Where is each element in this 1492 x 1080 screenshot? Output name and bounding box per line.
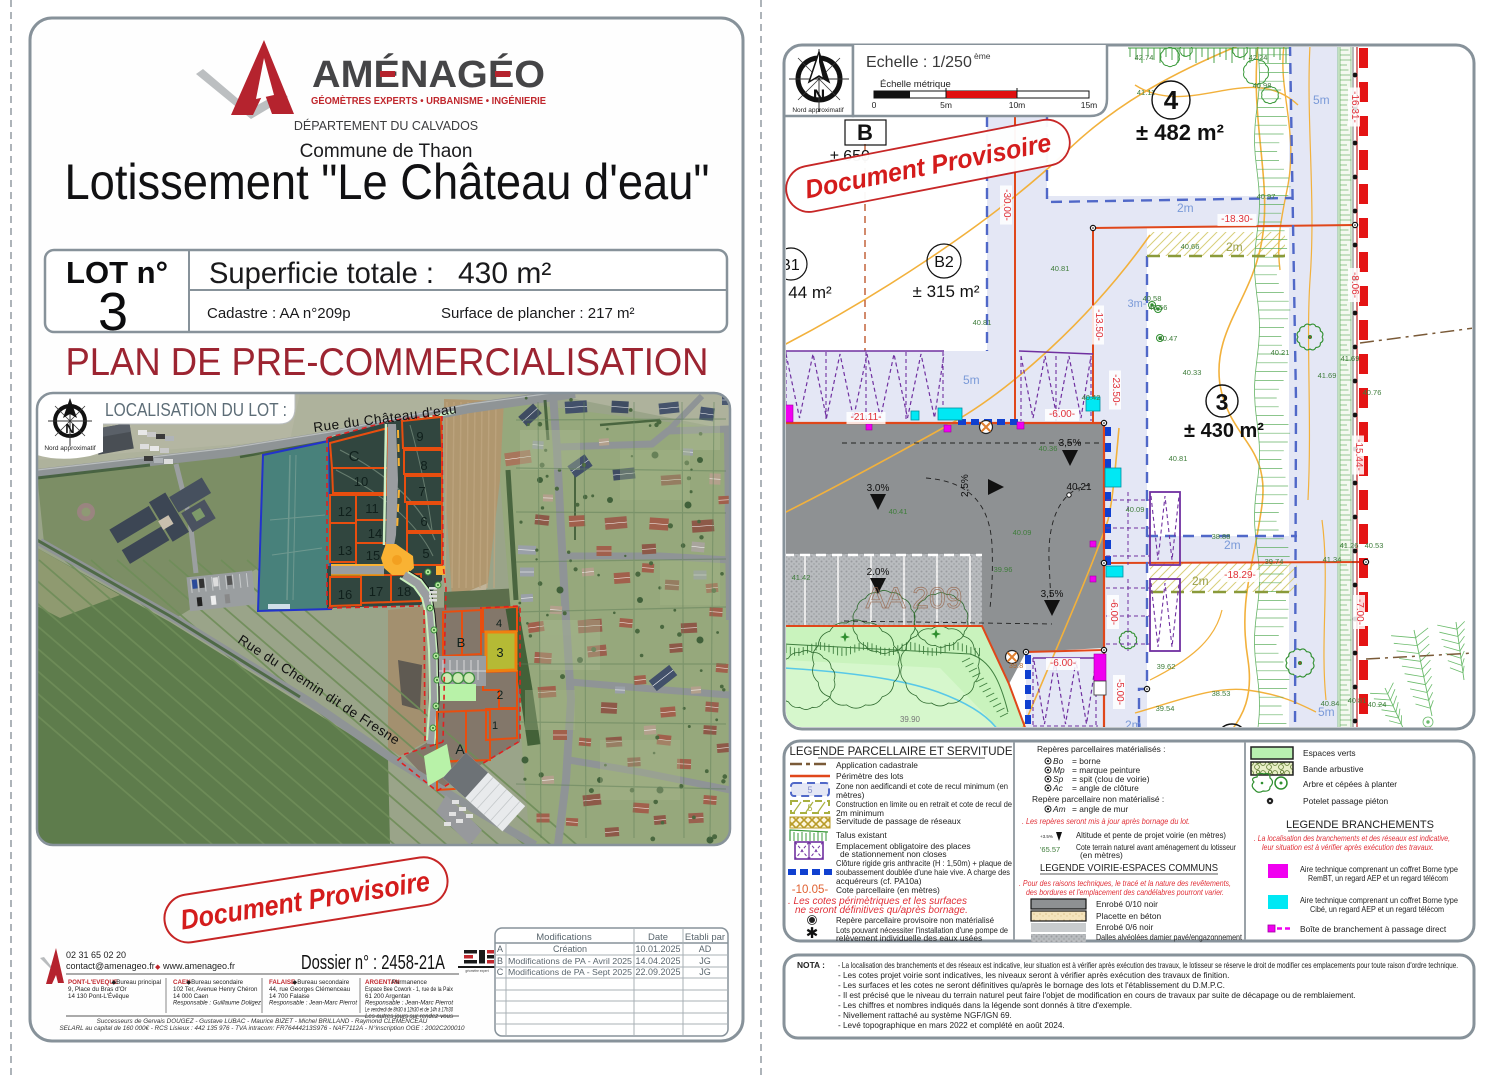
svg-text:02 31 65 02 20: 02 31 65 02 20 — [66, 950, 126, 960]
svg-text:3m-: 3m- — [1128, 298, 1147, 310]
svg-text:1: 1 — [492, 720, 498, 732]
svg-text:(en mètres): (en mètres) — [1080, 850, 1123, 860]
svg-text:JG: JG — [699, 956, 711, 966]
svg-text:. La localisation des branchem: . La localisation des branchements et de… — [1254, 834, 1450, 843]
svg-text:Modifications de PA - Avril 20: Modifications de PA - Avril 2025 — [508, 956, 632, 966]
svg-text:Enrobé 0/10 noir: Enrobé 0/10 noir — [1096, 899, 1158, 909]
svg-text:Cadastre : AA n°209p: Cadastre : AA n°209p — [207, 305, 351, 322]
svg-text:41.69: 41.69 — [1318, 371, 1337, 380]
svg-text:◆Bureau principal: ◆Bureau principal — [112, 979, 161, 986]
svg-text:C: C — [349, 448, 360, 465]
svg-text:Arbre et cépées à planter: Arbre et cépées à planter — [1303, 779, 1397, 789]
svg-text:NOTA :: NOTA : — [797, 960, 825, 970]
svg-text:44 m²: 44 m² — [788, 283, 832, 302]
svg-text:2m: 2m — [1224, 538, 1241, 552]
svg-text:'65.57: '65.57 — [1040, 845, 1060, 854]
svg-text:39.54: 39.54 — [1156, 704, 1175, 713]
svg-text:5: 5 — [807, 785, 812, 795]
svg-text:3,5%: 3,5% — [1059, 438, 1082, 449]
svg-text:40.81: 40.81 — [973, 318, 992, 327]
svg-text:40.42: 40.42 — [1082, 393, 1101, 402]
svg-text:3: 3 — [1216, 389, 1229, 415]
svg-text:10.01.2025: 10.01.2025 — [635, 944, 680, 954]
svg-text:AD: AD — [699, 944, 712, 954]
svg-text:- Levé topographique en mars 2: - Levé topographique en mars 2022 et com… — [838, 1021, 1065, 1030]
svg-text:38.53: 38.53 — [1212, 689, 1231, 698]
svg-text:- Nivellement rattaché au syst: - Nivellement rattaché au système NGF/IG… — [838, 1011, 1012, 1020]
svg-text:Surface de plancher : 217 m²: Surface de plancher : 217 m² — [441, 305, 634, 322]
svg-text:= angle de mur: = angle de mur — [1072, 804, 1128, 814]
svg-text:-6.00-: -6.00- — [1049, 409, 1075, 420]
svg-text:Responsable : Jean-Marc Pierro: Responsable : Jean-Marc Pierrot — [269, 1000, 357, 1007]
svg-text:-5.00-: -5.00- — [1114, 679, 1125, 705]
svg-text:41.42: 41.42 — [792, 573, 811, 582]
svg-text:Ac: Ac — [1052, 783, 1064, 793]
svg-text:GÉOMÈTRES EXPERTS • URBANISME: GÉOMÈTRES EXPERTS • URBANISME • INGÉNIER… — [311, 94, 546, 107]
svg-text:40.33: 40.33 — [1183, 368, 1202, 377]
svg-text:14: 14 — [368, 526, 382, 541]
svg-text:40.76: 40.76 — [1363, 388, 1382, 397]
svg-text:-6.00-: -6.00- — [1108, 599, 1119, 625]
svg-text:leur situation est à vérifier: leur situation est à vérifier après exéc… — [1262, 843, 1434, 852]
svg-text:◆Bureau secondaire: ◆Bureau secondaire — [292, 979, 349, 986]
svg-text:- Les chiffres et nombres indi: - Les chiffres et nombres indiqués dans … — [838, 1001, 1132, 1010]
svg-text:40.21: 40.21 — [1271, 348, 1290, 357]
svg-text:5m: 5m — [963, 373, 980, 387]
svg-text:Création: Création — [553, 944, 587, 954]
svg-text:2,5%: 2,5% — [960, 474, 971, 497]
svg-text:42.24: 42.24 — [1249, 53, 1268, 62]
svg-text:3,5%: 3,5% — [1041, 589, 1064, 600]
svg-text:40.56: 40.56 — [1149, 303, 1168, 312]
svg-text:AA 209: AA 209 — [866, 582, 963, 615]
svg-text:Nord approximatif: Nord approximatif — [792, 107, 843, 114]
svg-text:2.0%: 2.0% — [867, 567, 890, 578]
svg-text:= angle de clôture: = angle de clôture — [1072, 783, 1139, 793]
svg-text:des bordures et l'emplacement: des bordures et l'emplacement des candél… — [1026, 888, 1224, 897]
svg-text:Périmètre des lots: Périmètre des lots — [836, 771, 904, 781]
svg-text:39.8: 39.8 — [1009, 661, 1024, 670]
svg-text:Nord approximatif: Nord approximatif — [44, 445, 95, 452]
svg-text:40.97: 40.97 — [1257, 192, 1276, 201]
svg-text:www.amenageo.fr: www.amenageo.fr — [162, 961, 235, 971]
svg-text:PONT-L'EVEQUE: PONT-L'EVEQUE — [68, 979, 118, 986]
svg-text:N: N — [813, 86, 825, 105]
svg-text:Repère parcellaire provisoire: Repère parcellaire provisoire non matéri… — [836, 915, 994, 925]
svg-text:DÉPARTEMENT DU CALVADOS: DÉPARTEMENT DU CALVADOS — [294, 118, 478, 133]
svg-text:17: 17 — [369, 584, 383, 599]
svg-text:40.81: 40.81 — [1348, 696, 1367, 705]
svg-text:16: 16 — [338, 587, 352, 602]
svg-text:✱: ✱ — [806, 925, 819, 942]
svg-text:3: 3 — [98, 282, 128, 342]
svg-text:18: 18 — [397, 584, 411, 599]
svg-text:-18.30-: -18.30- — [1221, 214, 1253, 225]
svg-text:Espaces verts: Espaces verts — [1303, 748, 1356, 758]
svg-text:géomètre expert: géomètre expert — [465, 969, 488, 973]
svg-text:13: 13 — [338, 543, 352, 558]
svg-text:± 482 m²: ± 482 m² — [1136, 120, 1224, 145]
svg-text:3: 3 — [496, 645, 503, 660]
svg-text:FALAISE: FALAISE — [269, 979, 295, 986]
svg-text:Am: Am — [1052, 804, 1066, 814]
svg-text:14 130 Pont-L'Évêque: 14 130 Pont-L'Évêque — [68, 993, 130, 1000]
svg-text:Date: Date — [648, 932, 668, 943]
svg-text:40.24: 40.24 — [1368, 700, 1387, 709]
svg-text:Enrobé 0/6 noir: Enrobé 0/6 noir — [1096, 922, 1153, 932]
svg-text:-10.05-: -10.05- — [792, 884, 829, 896]
svg-text:Talus existant: Talus existant — [836, 830, 887, 840]
svg-text:- La localisation des branchem: - La localisation des branchements et de… — [838, 961, 1458, 970]
svg-text:0: 0 — [872, 100, 877, 110]
svg-text:39.74: 39.74 — [1265, 557, 1284, 566]
svg-text:5m: 5m — [1318, 705, 1335, 719]
svg-text:-23.50-: -23.50- — [1110, 374, 1121, 406]
svg-text:22.09.2025: 22.09.2025 — [635, 967, 680, 977]
svg-text:5m: 5m — [940, 100, 952, 110]
svg-text:Boîte de branchement à passage: Boîte de branchement à passage direct — [1300, 924, 1447, 934]
svg-text:Dalles alvéolées damier pavé/e: Dalles alvéolées damier pavé/engazonneme… — [1096, 932, 1243, 942]
svg-text:. Pour des raisons techniques,: . Pour des raisons techniques, le tracé … — [1019, 879, 1231, 888]
svg-text:Repère parcellaire non matéria: Repère parcellaire non matérialisé : — [1032, 794, 1164, 804]
svg-text:9: 9 — [416, 429, 423, 444]
svg-text:6: 6 — [420, 514, 427, 529]
svg-text:Bande arbustive: Bande arbustive — [1303, 764, 1364, 774]
svg-text:- Les surfaces et les cotes ne: - Les surfaces et les cotes ne seront dé… — [838, 981, 1225, 990]
svg-text:41.26: 41.26 — [1340, 541, 1359, 550]
svg-text:42.74: 42.74 — [1135, 53, 1154, 62]
svg-text:C: C — [497, 967, 504, 977]
svg-text:Placette en béton: Placette en béton — [1096, 911, 1162, 921]
svg-text:40.98: 40.98 — [1253, 81, 1272, 90]
svg-text:Superficie totale :: Superficie totale : — [209, 257, 434, 290]
svg-text:2m: 2m — [1192, 574, 1209, 588]
svg-text:JG: JG — [699, 967, 711, 977]
svg-text:-7.00-: -7.00- — [1354, 599, 1365, 625]
svg-text:Responsable : Guillaume Dolige: Responsable : Guillaume Doligez — [173, 1000, 262, 1007]
svg-text:B2: B2 — [934, 254, 954, 271]
svg-text:40.81: 40.81 — [1169, 454, 1188, 463]
svg-text:± 430 m²: ± 430 m² — [1184, 420, 1264, 442]
svg-text:-30.00-: -30.00- — [1001, 189, 1012, 221]
svg-text:39.90: 39.90 — [900, 715, 921, 724]
svg-text:40.36: 40.36 — [1039, 444, 1058, 453]
svg-text:2m: 2m — [1177, 201, 1194, 215]
svg-text:ème: ème — [974, 51, 991, 61]
svg-text:41.34: 41.34 — [1323, 555, 1342, 564]
svg-text:Permanence: Permanence — [392, 979, 428, 986]
svg-text:11: 11 — [365, 501, 379, 516]
svg-text:10: 10 — [354, 474, 368, 489]
svg-text:4: 4 — [1164, 85, 1179, 115]
svg-text:Cote parcellaire (en mètres): Cote parcellaire (en mètres) — [836, 885, 940, 895]
svg-text:430 m²: 430 m² — [458, 257, 551, 290]
svg-text:-18.29-: -18.29- — [1224, 570, 1256, 581]
svg-text:Potelet passage piéton: Potelet passage piéton — [1303, 796, 1389, 806]
svg-text:4: 4 — [496, 618, 502, 630]
svg-text:◆Bureau secondaire: ◆Bureau secondaire — [186, 979, 243, 986]
svg-text:-15.44-: -15.44- — [1353, 439, 1364, 471]
svg-text:B: B — [857, 120, 873, 145]
svg-text:40.41: 40.41 — [889, 507, 908, 516]
svg-text:Échelle métrique: Échelle métrique — [880, 79, 951, 90]
svg-text:B: B — [457, 635, 466, 650]
svg-text:relèvement individuelle des ea: relèvement individuelle des eaux usées — [836, 933, 982, 943]
svg-text:- Il est précisé que le niveau: - Il est précisé que le niveau du terrai… — [838, 991, 1356, 1000]
svg-text:40.81: 40.81 — [1051, 264, 1070, 273]
svg-text:N: N — [65, 421, 74, 436]
svg-text:40.53: 40.53 — [1365, 541, 1384, 550]
svg-text:. Les repères seront mis à jou: . Les repères seront mis à jour après bo… — [1022, 816, 1190, 826]
svg-text:14.04.2025: 14.04.2025 — [635, 956, 680, 966]
svg-text:5m: 5m — [1313, 93, 1330, 107]
svg-text:SELARL au capital de 160 000€: SELARL au capital de 160 000€ - RCS Lisi… — [59, 1024, 465, 1032]
svg-text:B: B — [497, 956, 503, 966]
svg-text:39.62: 39.62 — [1157, 662, 1176, 671]
svg-text:Dossier n° : 2458-21A: Dossier n° : 2458-21A — [301, 952, 445, 974]
svg-text:40.09: 40.09 — [1013, 528, 1032, 537]
svg-text:± 315 m²: ± 315 m² — [913, 282, 980, 301]
svg-text:40.47: 40.47 — [1159, 334, 1178, 343]
svg-text:Modifications de PA - Sept 202: Modifications de PA - Sept 2025 — [508, 967, 632, 977]
svg-text:LOCALISATION DU LOT :: LOCALISATION DU LOT : — [105, 399, 287, 420]
svg-text:40.66: 40.66 — [1181, 242, 1200, 251]
svg-text:39.96: 39.96 — [994, 565, 1013, 574]
svg-text:Servitude de passage de réseau: Servitude de passage de réseaux — [836, 816, 962, 826]
svg-text:Etabli par: Etabli par — [685, 932, 725, 943]
svg-text:15m: 15m — [1081, 100, 1098, 110]
svg-text:LEGENDE VOIRIE-ESPACES COMMUNS: LEGENDE VOIRIE-ESPACES COMMUNS — [1040, 862, 1218, 874]
svg-text:-21.11-: -21.11- — [851, 412, 882, 423]
svg-text:40.09: 40.09 — [1126, 505, 1145, 514]
svg-text:8: 8 — [420, 458, 427, 473]
svg-text:RemBT, un regard AEP et un reg: RemBT, un regard AEP et un regard téléco… — [1308, 873, 1448, 883]
svg-text:Echelle : 1/250: Echelle : 1/250 — [866, 54, 972, 71]
svg-text:LEGENDE BRANCHEMENTS: LEGENDE BRANCHEMENTS — [1286, 819, 1434, 831]
svg-text:40,21: 40,21 — [1066, 482, 1091, 493]
svg-text:PLAN DE PRE-COMMERCIALISATION: PLAN DE PRE-COMMERCIALISATION — [66, 341, 709, 384]
svg-text:-6.00-: -6.00- — [1050, 658, 1076, 669]
svg-text:-16.31-: -16.31- — [1349, 91, 1360, 123]
svg-text:7: 7 — [418, 484, 425, 499]
svg-text:Application cadastrale: Application cadastrale — [836, 760, 918, 770]
svg-text:12: 12 — [338, 504, 352, 519]
svg-text:Successeurs de Gervais DOUGEZ: Successeurs de Gervais DOUGEZ - Gustave … — [97, 1018, 428, 1025]
svg-text:5: 5 — [422, 546, 429, 561]
svg-text:3.0%: 3.0% — [867, 483, 890, 494]
svg-text:LEGENDE PARCELLAIRE ET SERVITU: LEGENDE PARCELLAIRE ET SERVITUDE — [789, 746, 1012, 758]
svg-text:15: 15 — [366, 548, 380, 563]
svg-text:AMÉNAGÉO: AMÉNAGÉO — [312, 52, 545, 96]
svg-text:2: 2 — [497, 688, 504, 702]
svg-text:10m: 10m — [1009, 100, 1026, 110]
svg-text:Lotissement "Le Château d'eau": Lotissement "Le Château d'eau" — [65, 154, 710, 210]
svg-text:-8.06-: -8.06- — [1349, 272, 1360, 298]
svg-text:A: A — [455, 741, 465, 757]
svg-text:◆: ◆ — [155, 964, 161, 971]
svg-text:- Les cotes projet voirie sont: - Les cotes projet voirie sont indicativ… — [838, 971, 1229, 980]
svg-text:+3.5%: +3.5% — [1040, 834, 1053, 839]
svg-text:contact@amenageo.fr: contact@amenageo.fr — [66, 961, 155, 971]
svg-text:2m: 2m — [1226, 240, 1243, 254]
svg-text:Modifications: Modifications — [536, 932, 592, 943]
svg-text:-13.50-: -13.50- — [1093, 309, 1104, 341]
svg-text:A: A — [497, 944, 503, 954]
svg-text:Cibé, un regard AEP et un rega: Cibé, un regard AEP et un regard télécom — [1310, 904, 1444, 914]
svg-text:Altitude et pente de projet vo: Altitude et pente de projet voirie (en m… — [1076, 830, 1226, 840]
svg-text:Repères parcellaires matériali: Repères parcellaires matérialisés : — [1037, 744, 1165, 754]
svg-text:41.69: 41.69 — [1341, 354, 1360, 363]
